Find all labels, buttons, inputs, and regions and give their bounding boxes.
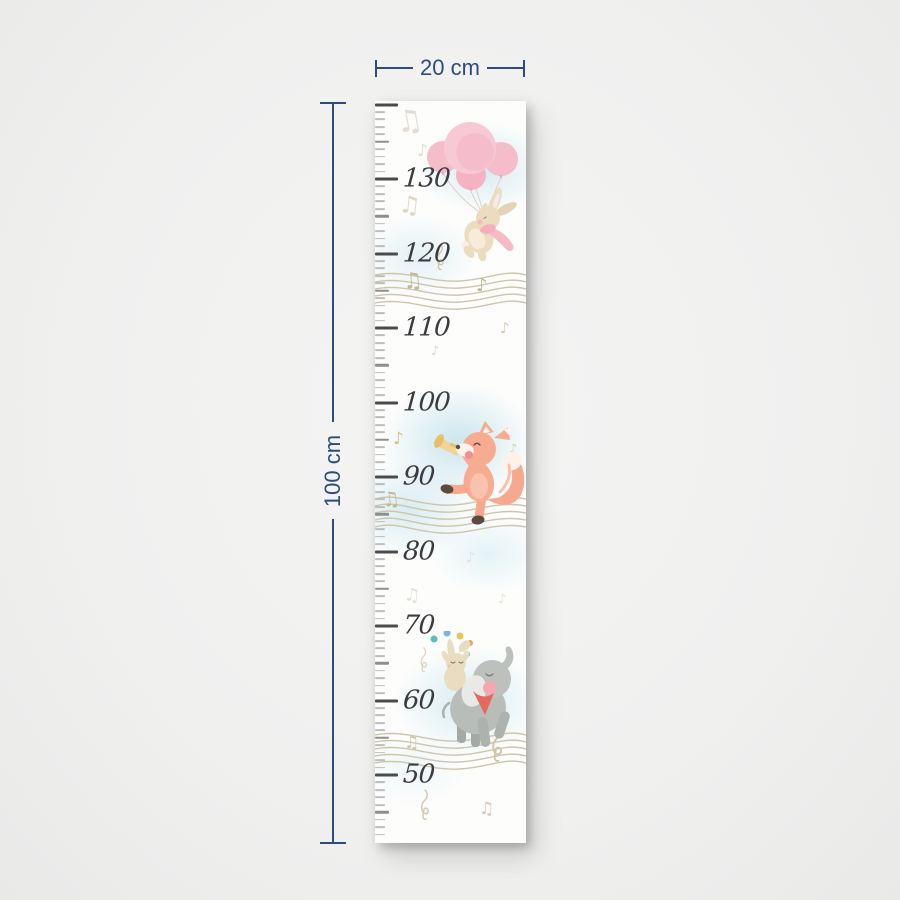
- ruler-number: 50: [402, 759, 435, 789]
- ruler-tick: [375, 252, 398, 255]
- ruler-tick: [375, 275, 385, 277]
- ruler-tick: [375, 513, 389, 516]
- ruler-tick: [375, 238, 385, 240]
- ruler-tick: [375, 282, 385, 284]
- ruler-tick: [375, 685, 385, 687]
- ruler-tick: [375, 484, 385, 486]
- ruler-tick: [375, 193, 385, 195]
- ruler-tick: [375, 379, 385, 381]
- ruler-tick: [375, 737, 389, 740]
- ruler-tick: [375, 573, 385, 575]
- ruler-tick: [375, 476, 398, 479]
- ruler-tick: [375, 550, 398, 553]
- ruler-tick: [375, 200, 385, 202]
- ruler-tick: [375, 618, 385, 620]
- ruler-tick: [375, 103, 398, 106]
- ruler-tick: [375, 335, 385, 337]
- dimension-end-cap: [320, 842, 346, 844]
- ruler-tick: [375, 357, 385, 359]
- ruler-tick: [375, 565, 385, 567]
- ruler-number: 60: [402, 685, 435, 715]
- ruler: 1301201101009080706050: [375, 101, 526, 843]
- ruler-tick: [375, 267, 385, 269]
- ruler-tick: [375, 491, 385, 493]
- ruler-tick: [375, 819, 385, 821]
- ruler-tick: [375, 372, 385, 374]
- ruler-tick: [375, 260, 385, 262]
- ruler-tick: [375, 387, 385, 389]
- ruler-tick: [375, 349, 385, 351]
- ruler-tick: [375, 178, 398, 181]
- ruler-tick: [375, 595, 385, 597]
- ruler-tick: [375, 699, 398, 702]
- dimension-line: [332, 104, 334, 422]
- dimension-line: [487, 67, 523, 69]
- ruler-tick: [375, 826, 385, 828]
- ruler-tick: [375, 543, 385, 545]
- ruler-tick: [375, 111, 385, 113]
- ruler-tick: [375, 625, 398, 628]
- ruler-tick: [375, 469, 385, 471]
- ruler-tick: [375, 156, 385, 158]
- ruler-tick: [375, 401, 398, 404]
- ruler-tick: [375, 767, 385, 769]
- ruler-tick: [375, 461, 385, 463]
- ruler-tick: [375, 707, 385, 709]
- height-dimension: 100 cm: [320, 102, 346, 844]
- ruler-tick: [375, 431, 385, 433]
- ruler-tick: [375, 118, 385, 120]
- ruler-tick: [375, 744, 385, 746]
- ruler-tick: [375, 662, 389, 665]
- ruler-number: 130: [402, 163, 451, 193]
- ruler-tick: [375, 312, 385, 314]
- ruler-tick: [375, 677, 385, 679]
- dimension-end-cap: [523, 60, 525, 77]
- ruler-tick: [375, 424, 385, 426]
- ruler-tick: [375, 722, 385, 724]
- ruler-tick: [375, 126, 385, 128]
- ruler-tick: [375, 223, 385, 225]
- ruler-tick: [375, 290, 389, 293]
- product-image: 20 cm 100 cm: [0, 0, 900, 900]
- ruler-tick: [375, 536, 385, 538]
- ruler-number: 90: [402, 461, 435, 491]
- ruler-tick: [375, 215, 389, 218]
- ruler-number: 70: [402, 610, 435, 640]
- ruler-tick: [375, 789, 385, 791]
- ruler-tick: [375, 610, 385, 612]
- ruler-number: 110: [402, 312, 451, 342]
- ruler-tick: [375, 297, 385, 299]
- ruler-tick: [375, 148, 385, 150]
- ruler-tick: [375, 141, 389, 144]
- ruler-tick: [375, 528, 385, 530]
- ruler-tick: [375, 454, 385, 456]
- width-dimension-label: 20 cm: [413, 55, 487, 81]
- ruler-tick: [375, 394, 385, 396]
- ruler-tick: [375, 208, 385, 210]
- ruler-tick: [375, 796, 385, 798]
- ruler-tick: [375, 655, 385, 657]
- ruler-tick: [375, 320, 385, 322]
- ruler-tick: [375, 409, 385, 411]
- ruler-tick: [375, 342, 385, 344]
- ruler-tick: [375, 305, 385, 307]
- ruler-tick: [375, 558, 385, 560]
- ruler-tick: [375, 811, 389, 814]
- ruler-number: 120: [402, 238, 451, 268]
- ruler-tick: [375, 603, 385, 605]
- ruler-tick: [375, 588, 389, 591]
- ruler-tick: [375, 692, 385, 694]
- ruler-number: 80: [402, 536, 435, 566]
- ruler-tick: [375, 133, 385, 135]
- dimension-line: [377, 67, 413, 69]
- ruler-tick: [375, 670, 385, 672]
- ruler-tick: [375, 580, 385, 582]
- ruler-tick: [375, 364, 389, 367]
- ruler-tick: [375, 163, 385, 165]
- ruler-tick: [375, 714, 385, 716]
- ruler-tick: [375, 804, 385, 806]
- ruler-tick: [375, 521, 385, 523]
- ruler-number: 100: [402, 387, 451, 417]
- ruler-tick: [375, 752, 385, 754]
- ruler-tick: [375, 647, 385, 649]
- growth-chart: ♫ ♪ ♫ ♫ ♪ ♪ ♪ ♪ ♪ ♫ ♪ ♫ ♪ ♫ ♫: [375, 101, 526, 843]
- ruler-tick: [375, 834, 385, 836]
- ruler-tick: [375, 633, 385, 635]
- height-dimension-label: 100 cm: [320, 435, 346, 507]
- ruler-tick: [375, 640, 385, 642]
- ruler-tick: [375, 230, 385, 232]
- ruler-tick: [375, 439, 389, 442]
- ruler-tick: [375, 729, 385, 731]
- ruler-tick: [375, 245, 385, 247]
- ruler-tick: [375, 759, 385, 761]
- ruler-tick: [375, 416, 385, 418]
- ruler-tick: [375, 498, 385, 500]
- ruler-tick: [375, 446, 385, 448]
- ruler-tick: [375, 782, 385, 784]
- ruler-tick: [375, 186, 385, 188]
- ruler-tick: [375, 506, 385, 508]
- width-dimension: 20 cm: [375, 56, 525, 80]
- ruler-tick: [375, 774, 398, 777]
- dimension-line: [332, 519, 334, 842]
- ruler-tick: [375, 171, 385, 173]
- ruler-tick: [375, 327, 398, 330]
